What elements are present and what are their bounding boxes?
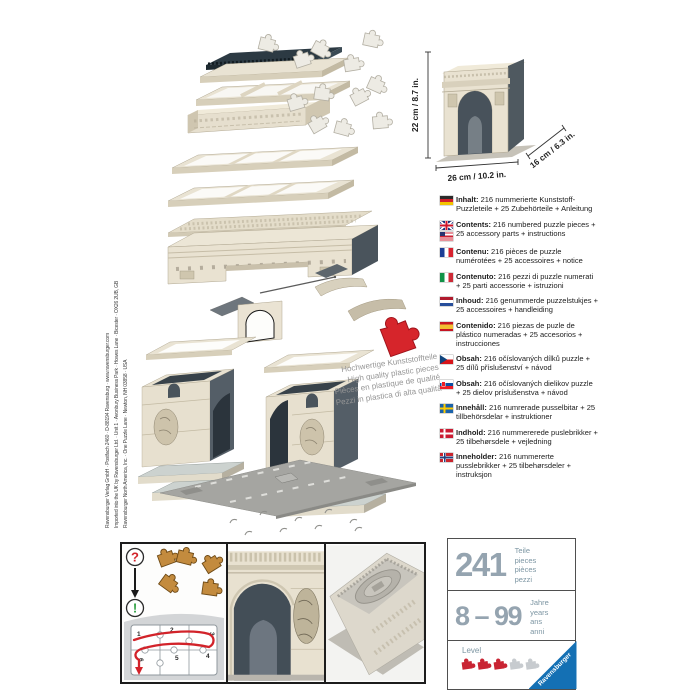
content-item-swedish: Innehåll: 216 numrerade pusselbitar + 25…	[440, 403, 690, 421]
content-item-czech: Obsah: 216 očíslovaných dílků puzzle + 2…	[440, 354, 690, 372]
svg-text:5: 5	[175, 655, 179, 662]
model-front-photo-panel	[228, 542, 326, 684]
finished-model-illustration	[436, 59, 536, 162]
flag-germany-icon	[440, 196, 453, 205]
width-dimension-label: 26 cm / 10.2 in.	[447, 169, 506, 183]
age-range: 8 – 99	[455, 591, 521, 640]
exclamation-icon: !	[133, 601, 137, 616]
flag-slovakia-icon	[440, 380, 453, 389]
entablature-block	[168, 225, 378, 284]
content-item-spanish: Contenido: 216 piezas de puzle de plásti…	[440, 321, 690, 348]
content-item-slovak: Obsah: 216 očíslovaných dielikov puzzle …	[440, 379, 690, 397]
gold-pieces	[156, 545, 225, 596]
depth-dimension-label: 16 cm / 6.3 in.	[528, 129, 577, 170]
level-label: Level	[455, 641, 575, 655]
height-dimension-label: 22 cm / 8.7 in.	[410, 78, 420, 132]
pieces-count-row: 241 Teile pieces pièces pezzi	[448, 539, 575, 591]
age-range-labels: Jahre years ans anni	[530, 591, 549, 640]
flag-sweden-icon	[440, 404, 453, 413]
puzzle-box-back: Ravensburger Verlag GmbH · Postfach 2460…	[0, 0, 700, 700]
flag-italy-icon	[440, 273, 453, 282]
level-piece-icon	[524, 656, 540, 671]
svg-text:4: 4	[206, 653, 210, 660]
flag-czechia-icon	[440, 355, 453, 364]
bottom-strip: ? !	[120, 542, 426, 684]
content-item-danish: Indhold: 216 nummererede puslebrikker + …	[440, 428, 690, 446]
age-range-row: 8 – 99 Jahre years ans anni	[448, 591, 575, 641]
assembly-instructions-panel: ? !	[120, 542, 228, 684]
flag-denmark-icon	[440, 429, 453, 438]
level-piece-icon	[508, 656, 524, 671]
ring-frame	[146, 337, 256, 360]
flag-uk-icon	[440, 221, 453, 230]
level-piece-icon	[476, 656, 492, 671]
frame-layer	[172, 147, 358, 174]
size-diagram: 22 cm / 8.7 in. 26 cm / 10.2 in. 16 cm /…	[402, 34, 602, 186]
exploded-assembly-diagram	[110, 25, 440, 537]
level-row: Level Ravensburger	[448, 641, 575, 688]
flag-norway-icon	[440, 453, 453, 462]
flag-usa-icon	[440, 232, 453, 241]
info-box: 241 Teile pieces pièces pezzi 8 – 99 Jah…	[447, 538, 576, 690]
flag-spain-icon	[440, 322, 453, 331]
left-tower	[142, 369, 234, 467]
level-piece-icon	[460, 656, 476, 671]
flag-france-icon	[440, 248, 453, 257]
content-item-italian: Contenuto: 216 pezzi di puzzle numerati …	[440, 272, 690, 290]
level-piece-icon	[492, 656, 508, 671]
flag-netherlands-icon	[440, 297, 453, 306]
content-item-dutch: Inhoud: 216 genummerde puzzelstukjes + 2…	[440, 296, 690, 314]
content-item-english: Contents: 216 numbered puzzle pieces + 2…	[440, 220, 690, 241]
model-top-photo-panel	[326, 542, 426, 684]
pieces-count-labels: Teile pieces pièces pezzi	[515, 539, 537, 590]
pieces-count: 241	[455, 539, 506, 590]
content-item-norwegian: Inneholder: 216 nummererte pusslebrikker…	[440, 452, 690, 479]
question-icon: ?	[131, 550, 139, 565]
contents-list: Inhalt: 216 nummerierte Kunststoff-Puzzl…	[440, 195, 690, 486]
content-item-french: Contenu: 216 pièces de puzzle numérotées…	[440, 247, 690, 265]
content-item-german: Inhalt: 216 nummerierte Kunststoff-Puzzl…	[440, 195, 690, 213]
